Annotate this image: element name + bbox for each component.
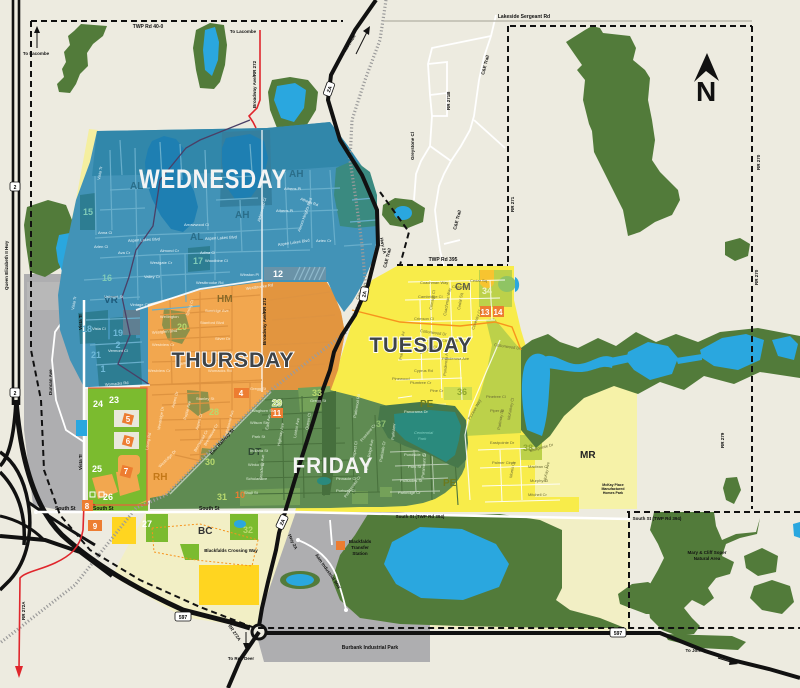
svg-text:Westview Cr: Westview Cr (148, 368, 171, 373)
svg-text:7: 7 (124, 467, 129, 476)
svg-text:33: 33 (312, 388, 322, 398)
svg-text:20: 20 (177, 322, 187, 332)
svg-text:To Joffre: To Joffre (686, 648, 705, 653)
svg-text:Gregg St: Gregg St (250, 386, 267, 391)
svg-text:Crimson Cl: Crimson Cl (414, 316, 434, 321)
svg-text:TWP Rd 40-0: TWP Rd 40-0 (133, 24, 164, 30)
svg-text:31: 31 (217, 492, 227, 502)
svg-text:Westview Cr: Westview Cr (152, 342, 175, 347)
svg-text:Sunridge Ave: Sunridge Ave (205, 308, 229, 313)
svg-text:AH: AH (289, 169, 303, 180)
svg-text:12: 12 (273, 269, 283, 279)
svg-text:17: 17 (193, 256, 203, 266)
svg-text:36: 36 (457, 387, 467, 397)
svg-text:Vermont Cl: Vermont Cl (108, 348, 128, 353)
svg-text:South St (TWP Rd 394): South St (TWP Rd 394) (633, 516, 682, 521)
svg-text:Ava Cr: Ava Cr (118, 250, 131, 255)
svg-text:Blackfalds: Blackfalds (349, 539, 372, 544)
svg-text:18: 18 (82, 324, 92, 334)
svg-text:Winston Pl: Winston Pl (240, 272, 259, 277)
svg-text:29: 29 (272, 398, 282, 408)
svg-text:Pine Cr: Pine Cr (430, 388, 444, 393)
svg-text:Pinewood: Pinewood (392, 376, 410, 381)
svg-text:Mitchell Cr: Mitchell Cr (528, 492, 548, 497)
svg-text:Cedar Sq: Cedar Sq (470, 278, 487, 283)
svg-text:Natural Area: Natural Area (694, 556, 721, 561)
svg-text:Cedar Cl: Cedar Cl (452, 284, 468, 289)
svg-text:Valley Cr: Valley Cr (144, 274, 161, 279)
svg-text:30: 30 (205, 457, 215, 467)
svg-text:27: 27 (142, 519, 152, 529)
svg-text:South St (TWP Rd 394): South St (TWP Rd 394) (396, 514, 445, 519)
svg-text:South St: South St (199, 506, 220, 512)
svg-text:16: 16 (102, 273, 112, 283)
svg-text:South St: South St (55, 506, 76, 512)
svg-text:Station: Station (352, 551, 368, 556)
svg-text:RR 279: RR 279 (720, 432, 725, 448)
svg-text:Arlen Cl: Arlen Cl (94, 244, 108, 249)
svg-text:RR 270: RR 270 (756, 154, 761, 170)
svg-text:RR 272A: RR 272A (21, 601, 26, 620)
svg-text:TUESDAY: TUESDAY (370, 334, 473, 357)
svg-text:Coachman Way: Coachman Way (420, 280, 448, 285)
svg-text:Lakeside Sergeant Rd: Lakeside Sergeant Rd (498, 14, 550, 20)
svg-text:8: 8 (85, 502, 90, 511)
svg-text:Aztec Cr: Aztec Cr (316, 238, 332, 243)
svg-text:THURSDAY: THURSDAY (172, 349, 295, 372)
svg-text:AL: AL (190, 232, 203, 243)
svg-text:15: 15 (83, 207, 93, 217)
svg-text:6: 6 (126, 437, 131, 446)
svg-text:Park St: Park St (252, 434, 266, 439)
svg-text:21: 21 (91, 350, 101, 360)
svg-text:Silver Dr: Silver Dr (215, 336, 231, 341)
svg-text:14: 14 (494, 308, 503, 317)
svg-text:Vintage Cl: Vintage Cl (130, 302, 148, 307)
svg-text:5: 5 (126, 415, 131, 424)
svg-text:34: 34 (482, 286, 492, 296)
svg-text:Shull St: Shull St (244, 490, 259, 495)
svg-text:Westgate Cr: Westgate Cr (150, 260, 173, 265)
svg-text:RH: RH (153, 472, 167, 483)
svg-text:11: 11 (273, 409, 282, 418)
svg-text:Valmont St: Valmont St (104, 294, 124, 299)
svg-text:Anna Cl: Anna Cl (98, 230, 112, 235)
svg-text:Broadway Ave/RR 272: Broadway Ave/RR 272 (252, 60, 257, 108)
svg-text:597: 597 (179, 615, 188, 621)
svg-text:BC: BC (198, 526, 212, 537)
svg-text:19: 19 (113, 328, 123, 338)
svg-text:25: 25 (92, 464, 102, 474)
svg-text:Westbrooke Rd: Westbrooke Rd (196, 280, 224, 285)
svg-text:South St: South St (93, 506, 114, 512)
svg-text:28: 28 (209, 407, 219, 417)
svg-text:597: 597 (614, 631, 623, 637)
svg-text:13: 13 (481, 308, 490, 317)
svg-text:Stanford Blvd: Stanford Blvd (200, 320, 224, 325)
svg-text:Parkridge Cr: Parkridge Cr (398, 490, 421, 495)
svg-text:Pinetree Cl: Pinetree Cl (486, 394, 506, 399)
svg-text:24: 24 (93, 399, 103, 409)
svg-text:4: 4 (239, 389, 244, 398)
svg-text:Burbank Industrial Park: Burbank Industrial Park (342, 645, 399, 651)
svg-text:Arrowwood Cl: Arrowwood Cl (184, 222, 209, 227)
svg-text:Vista Tr: Vista Tr (78, 454, 83, 470)
svg-text:Centennial: Centennial (414, 430, 433, 435)
svg-text:Vista Cl: Vista Cl (92, 326, 106, 331)
svg-text:Gregg St: Gregg St (310, 398, 327, 403)
svg-text:Palisades St: Palisades St (400, 478, 423, 483)
svg-text:Athens Pl: Athens Pl (276, 208, 293, 213)
svg-text:AH: AH (235, 210, 249, 221)
svg-text:Panorama Dr: Panorama Dr (404, 409, 428, 414)
svg-text:Park: Park (418, 436, 427, 441)
svg-text:Almond Cr: Almond Cr (160, 248, 180, 253)
svg-text:Indiana St: Indiana St (250, 448, 269, 453)
svg-text:32: 32 (243, 525, 253, 535)
svg-text:Wellington: Wellington (160, 314, 179, 319)
svg-text:Waghorn St: Waghorn St (252, 408, 274, 413)
svg-text:WEDNESDAY: WEDNESDAY (139, 164, 287, 194)
svg-text:RR 270: RR 270 (754, 269, 759, 285)
svg-text:Greystone Cl: Greystone Cl (410, 132, 415, 160)
svg-text:MR: MR (580, 450, 596, 461)
svg-text:Homes Park: Homes Park (603, 491, 623, 495)
svg-text:Plumtree Cr: Plumtree Cr (410, 380, 432, 385)
svg-text:FRIDAY: FRIDAY (293, 453, 374, 478)
svg-text:RR 271: RR 271 (510, 196, 515, 212)
svg-text:PE: PE (443, 478, 457, 489)
svg-text:N: N (696, 76, 716, 107)
svg-text:Blackfalds Crossing Way: Blackfalds Crossing Way (204, 548, 258, 553)
svg-text:Woodbine Cl: Woodbine Cl (205, 258, 228, 263)
svg-text:23: 23 (109, 395, 119, 405)
svg-text:RR 271B: RR 271B (446, 91, 451, 110)
svg-text:To Red Deer: To Red Deer (228, 656, 254, 661)
svg-text:Stanley St: Stanley St (196, 396, 215, 401)
svg-text:To Lacombe: To Lacombe (230, 29, 257, 34)
svg-text:37: 37 (376, 419, 386, 429)
svg-text:Queen Elizabeth II Hwy: Queen Elizabeth II Hwy (4, 240, 9, 290)
svg-text:Vista Tr: Vista Tr (78, 314, 83, 330)
svg-text:1: 1 (100, 364, 105, 374)
svg-text:Duncan Ave: Duncan Ave (48, 369, 53, 395)
svg-text:Transfer: Transfer (351, 545, 369, 550)
svg-text:HM: HM (217, 294, 233, 305)
svg-text:Eastpointe Dr: Eastpointe Dr (490, 440, 515, 445)
svg-text:2: 2 (14, 391, 17, 397)
svg-text:Broadway Ave/RR 272: Broadway Ave/RR 272 (262, 297, 267, 345)
svg-text:Mary & Cliff Soper: Mary & Cliff Soper (687, 550, 726, 555)
svg-text:9: 9 (93, 522, 98, 531)
svg-text:Adina Cl: Adina Cl (200, 250, 215, 255)
svg-text:2: 2 (14, 185, 17, 191)
svg-text:Cyprus Rd: Cyprus Rd (414, 368, 433, 373)
svg-text:TWP Rd 395: TWP Rd 395 (429, 257, 458, 263)
svg-text:To Lacombe: To Lacombe (23, 51, 50, 56)
